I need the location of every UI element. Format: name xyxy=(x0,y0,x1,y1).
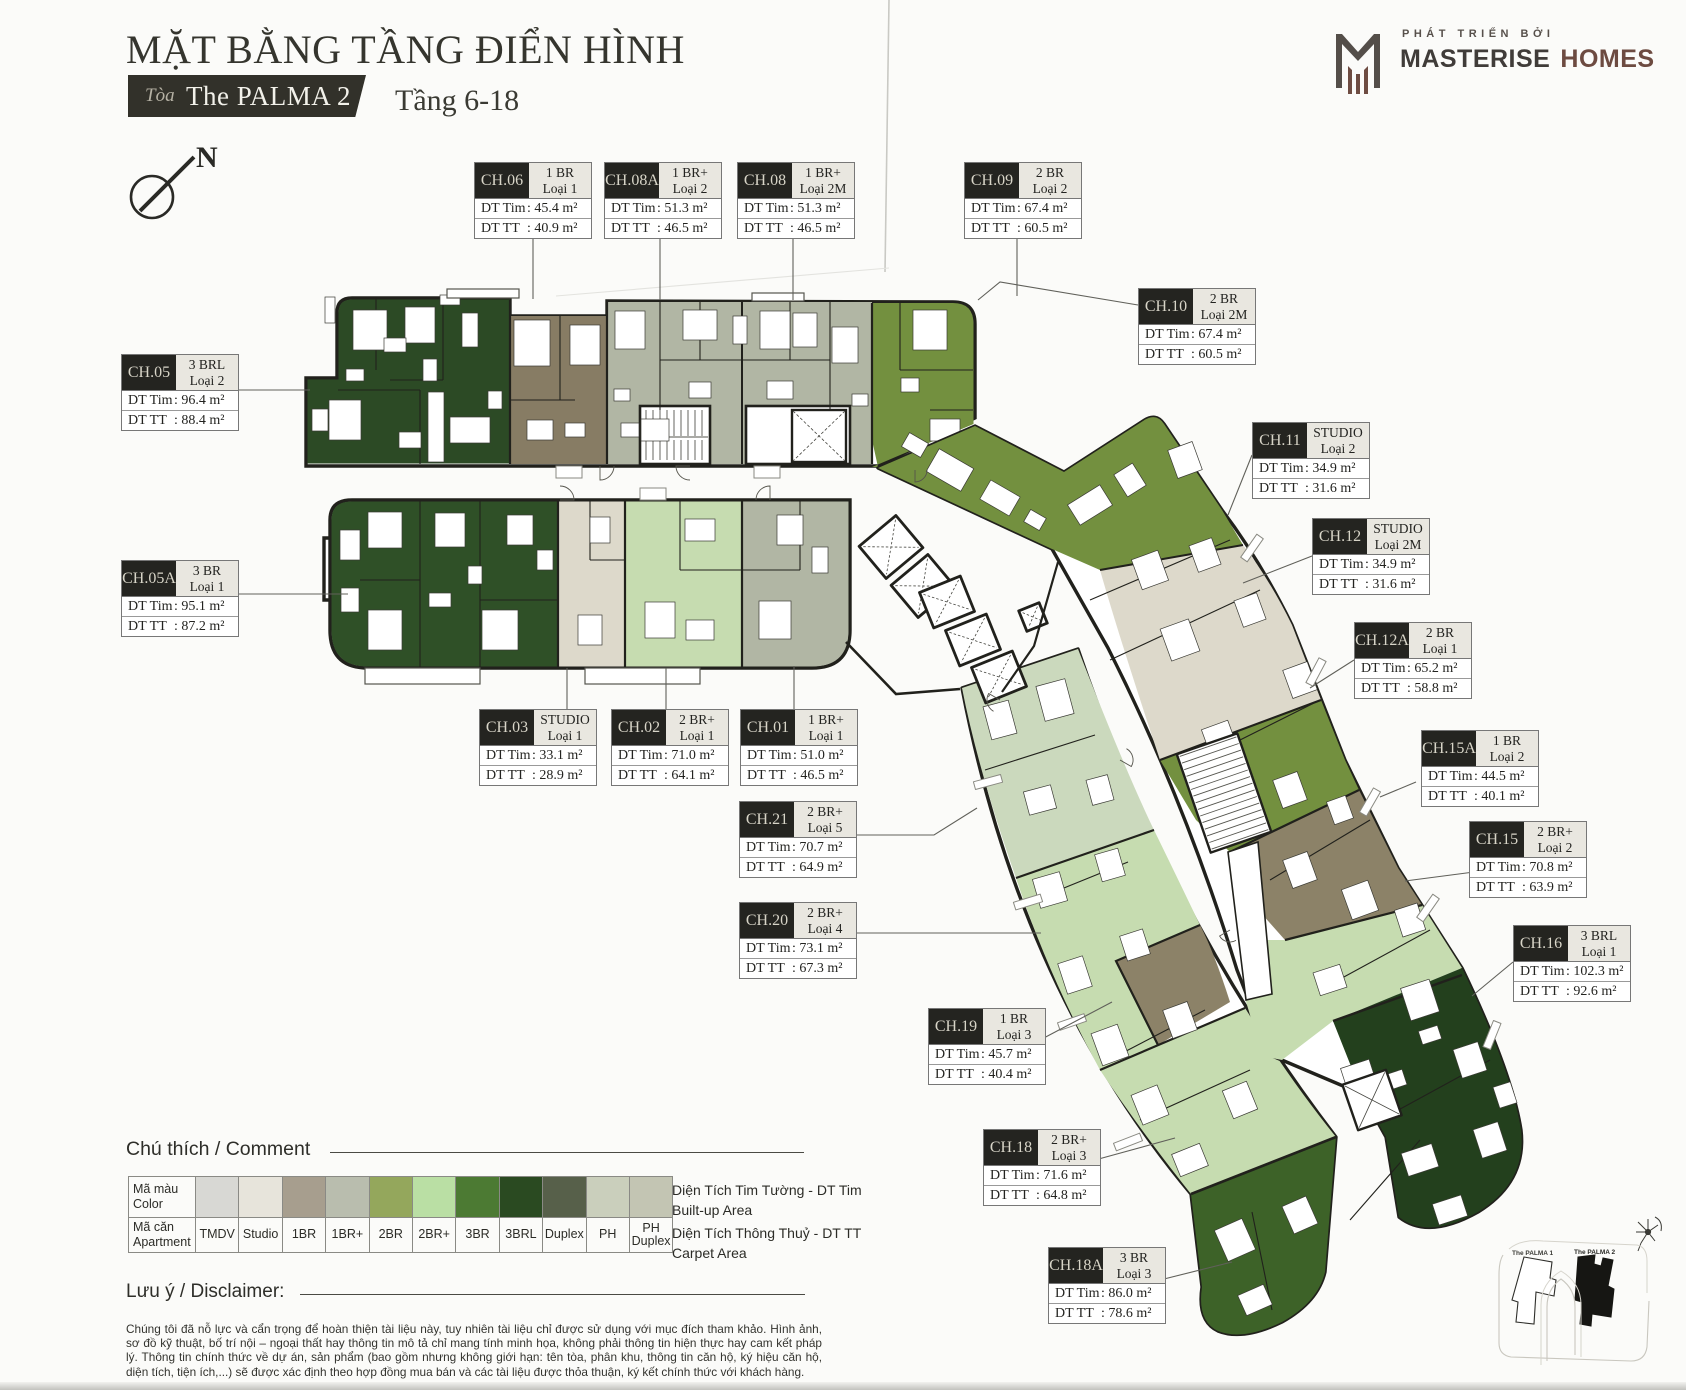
svg-text:The PALMA 1: The PALMA 1 xyxy=(1512,1250,1554,1257)
